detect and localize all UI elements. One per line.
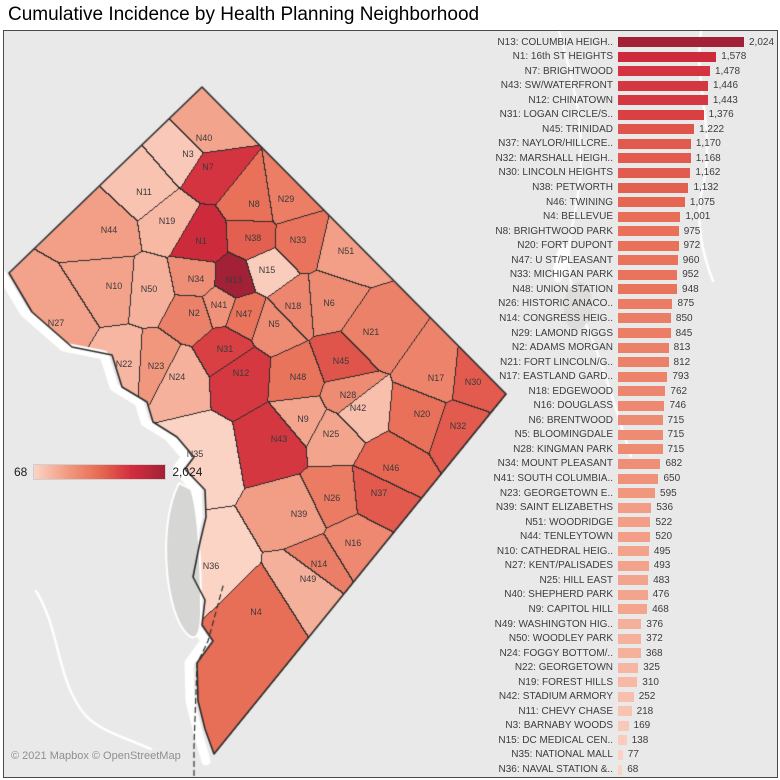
bar[interactable] <box>618 95 708 105</box>
bar-value: 1,132 <box>693 182 718 193</box>
bar-label: N47: U ST/PLEASANT <box>429 255 613 266</box>
bar-value: 495 <box>654 546 671 557</box>
bar-value: 218 <box>637 706 654 717</box>
bar-value: 1,478 <box>715 66 740 77</box>
bar-label: N40: SHEPHERD PARK <box>429 589 613 600</box>
bar-label: N50: WOODLEY PARK <box>429 633 613 644</box>
bar-label: N22: GEORGETOWN <box>429 662 613 673</box>
bar[interactable] <box>618 81 708 91</box>
bar[interactable] <box>618 183 688 193</box>
bar-label: N36: NAVAL STATION &.. <box>429 764 613 775</box>
bar-value: 522 <box>655 517 672 528</box>
bar-label: N16: DOUGLASS <box>429 400 613 411</box>
bar-value: 252 <box>639 691 656 702</box>
bar[interactable] <box>618 226 679 236</box>
bar-label: N23: GEORGETOWN E.. <box>429 488 613 499</box>
bar-label: N24: FOGGY BOTTOM/.. <box>429 648 613 659</box>
bar-label: N51: WOODRIDGE <box>429 517 613 528</box>
bar-value: 813 <box>674 342 691 353</box>
bar-value: 1,162 <box>695 167 720 178</box>
bar-value: 975 <box>684 226 701 237</box>
bar-label: N3: BARNABY WOODS <box>429 720 613 731</box>
bar-label: N37: NAYLOR/HILLCRE.. <box>429 138 613 149</box>
bar-label: N32: MARSHALL HEIGH.. <box>429 153 613 164</box>
bar[interactable] <box>618 648 641 658</box>
bar-label: N49: WASHINGTON HIG.. <box>429 619 613 630</box>
bar-label: N42: STADIUM ARMORY <box>429 691 613 702</box>
bar-value: 1,446 <box>713 80 738 91</box>
bar-label: N46: TWINING <box>429 197 613 208</box>
bar[interactable] <box>618 677 637 687</box>
bar-label: N14: CONGRESS HEIG.. <box>429 313 613 324</box>
bar-value: 1,376 <box>709 109 734 120</box>
bar[interactable] <box>618 488 655 498</box>
bar[interactable] <box>618 561 649 571</box>
bar[interactable] <box>618 139 691 149</box>
bar-value: 1,168 <box>696 153 721 164</box>
bar-value: 325 <box>643 662 660 673</box>
bar-label: N13: COLUMBIA HEIGH.. <box>429 37 613 48</box>
bar-label: N11: CHEVY CHASE <box>429 706 613 717</box>
bar-value: 650 <box>663 473 680 484</box>
bar[interactable] <box>618 721 629 731</box>
bar[interactable] <box>618 299 672 309</box>
bar[interactable] <box>618 765 622 775</box>
bar-value: 2,024 <box>749 37 774 48</box>
bar-value: 493 <box>654 560 671 571</box>
bar-value: 476 <box>653 589 670 600</box>
bar-label: N20: FORT DUPONT <box>429 240 613 251</box>
bar[interactable] <box>618 270 677 280</box>
bar-label: N12: CHINATOWN <box>429 95 613 106</box>
map-attribution[interactable]: © 2021 Mapbox © OpenStreetMap <box>11 750 181 762</box>
bar[interactable] <box>618 197 685 207</box>
bar[interactable] <box>618 386 665 396</box>
bar-value: 372 <box>646 633 663 644</box>
bar[interactable] <box>618 546 649 556</box>
bar-label: N29: LAMOND RIGGS <box>429 328 613 339</box>
bar-label: N4: BELLEVUE <box>429 211 613 222</box>
bar[interactable] <box>618 590 648 600</box>
bar-label: N44: TENLEYTOWN <box>429 531 613 542</box>
bar-value: 376 <box>646 619 663 630</box>
bar-label: N5: BLOOMINGDALE <box>429 429 613 440</box>
bar-label: N1: 16th ST HEIGHTS <box>429 51 613 62</box>
bar-value: 850 <box>676 313 693 324</box>
bar-value: 682 <box>665 458 682 469</box>
bar-label: N33: MICHIGAN PARK <box>429 269 613 280</box>
bar-value: 812 <box>674 357 691 368</box>
bar-value: 595 <box>660 488 677 499</box>
bar[interactable] <box>618 372 667 382</box>
bar-label: N38: PETWORTH <box>429 182 613 193</box>
dashboard-panel: N1N2N3N4N5N6N7N8N9N10N11N12N13N14N15N16N… <box>3 30 778 778</box>
bar-label: N17: EASTLAND GARD.. <box>429 371 613 382</box>
bar-value: 368 <box>646 648 663 659</box>
bar-value: 715 <box>668 444 685 455</box>
bar-label: N6: BRENTWOOD <box>429 415 613 426</box>
bar-label: N21: FORT LINCOLN/G.. <box>429 357 613 368</box>
bar[interactable] <box>618 37 744 47</box>
bar-value: 169 <box>634 720 651 731</box>
bar-value: 715 <box>668 429 685 440</box>
bar[interactable] <box>618 444 663 454</box>
bar[interactable] <box>618 212 680 222</box>
bar-label: N43: SW/WATERFRONT <box>429 80 613 91</box>
bar[interactable] <box>618 474 658 484</box>
bar-label: N27: KENT/PALISADES <box>429 560 613 571</box>
bar[interactable] <box>618 430 663 440</box>
bar[interactable] <box>618 459 660 469</box>
bar[interactable] <box>618 66 710 76</box>
bar-value: 972 <box>684 240 701 251</box>
bar-value: 1,222 <box>699 124 724 135</box>
bar-label: N41: SOUTH COLUMBIA.. <box>429 473 613 484</box>
bar-value: 468 <box>652 604 669 615</box>
bar-value: 1,001 <box>685 211 710 222</box>
bar[interactable] <box>618 517 650 527</box>
bar[interactable] <box>618 415 663 425</box>
bar[interactable] <box>618 619 641 629</box>
bar-label: N45: TRINIDAD <box>429 124 613 135</box>
bar[interactable] <box>618 750 623 760</box>
bar-value: 1,170 <box>696 138 721 149</box>
bar[interactable] <box>618 735 627 745</box>
bar[interactable] <box>618 284 677 294</box>
bar-label: N19: FOREST HILLS <box>429 677 613 688</box>
legend-max-label: 2,024 <box>172 465 202 479</box>
bar[interactable] <box>618 706 632 716</box>
bar[interactable] <box>618 52 716 62</box>
bar[interactable] <box>618 575 648 585</box>
bar-value: 77 <box>628 749 639 760</box>
bar-label: N39: SAINT ELIZABETHS <box>429 502 613 513</box>
bar[interactable] <box>618 153 691 163</box>
bar-value: 536 <box>656 502 673 513</box>
bar[interactable] <box>618 663 638 673</box>
bar[interactable] <box>618 634 641 644</box>
bar[interactable] <box>618 357 669 367</box>
bar-value: 520 <box>655 531 672 542</box>
bar-label: N9: CAPITOL HILL <box>429 604 613 615</box>
bar-value: 952 <box>682 269 699 280</box>
bar-value: 138 <box>632 735 649 746</box>
bar-value: 715 <box>668 415 685 426</box>
bar-value: 746 <box>669 400 686 411</box>
bar[interactable] <box>618 241 679 251</box>
bar-value: 483 <box>653 575 670 586</box>
bar-label: N15: DC MEDICAL CEN.. <box>429 735 613 746</box>
bar[interactable] <box>618 124 694 134</box>
bar[interactable] <box>618 110 704 120</box>
bar[interactable] <box>618 503 651 513</box>
bar-label: N7: BRIGHTWOOD <box>429 66 613 77</box>
bar-label: N18: EDGEWOOD <box>429 386 613 397</box>
bar[interactable] <box>618 255 678 265</box>
bar-value: 875 <box>677 298 694 309</box>
legend-gradient-bar <box>33 464 166 480</box>
bar-label: N26: HISTORIC ANACO.. <box>429 298 613 309</box>
page-title: Cumulative Incidence by Health Planning … <box>8 0 778 30</box>
bar-value: 68 <box>627 764 638 775</box>
bar-value: 1,578 <box>721 51 746 62</box>
bar-label: N30: LINCOLN HEIGHTS <box>429 167 613 178</box>
bar[interactable] <box>618 328 671 338</box>
bar-value: 1,075 <box>690 197 715 208</box>
bar-value: 1,443 <box>713 95 738 106</box>
bar[interactable] <box>618 604 647 614</box>
bar-label: N34: MOUNT PLEASANT <box>429 458 613 469</box>
bar[interactable] <box>618 532 650 542</box>
bar[interactable] <box>618 343 669 353</box>
bar[interactable] <box>618 692 634 702</box>
bar-value: 845 <box>676 328 693 339</box>
bar[interactable] <box>618 313 671 323</box>
bar-label: N8: BRIGHTWOOD PARK <box>429 226 613 237</box>
bar-value: 762 <box>670 386 687 397</box>
color-legend: 68 2,024 <box>14 464 202 480</box>
bar[interactable] <box>618 168 690 178</box>
bar-label: N10: CATHEDRAL HEIG.. <box>429 546 613 557</box>
bar-label: N25: HILL EAST <box>429 575 613 586</box>
bar-value: 948 <box>682 284 699 295</box>
bar-value: 960 <box>683 255 700 266</box>
bar-label: N31: LOGAN CIRCLE/S.. <box>429 109 613 120</box>
bar-label: N2: ADAMS MORGAN <box>429 342 613 353</box>
legend-min-label: 68 <box>14 465 27 479</box>
bar-value: 793 <box>672 371 689 382</box>
bar-value: 310 <box>642 677 659 688</box>
bar-label: N28: KINGMAN PARK <box>429 444 613 455</box>
bar-label: N48: UNION STATION <box>429 284 613 295</box>
bar[interactable] <box>618 401 664 411</box>
bar-label: N35: NATIONAL MALL <box>429 749 613 760</box>
